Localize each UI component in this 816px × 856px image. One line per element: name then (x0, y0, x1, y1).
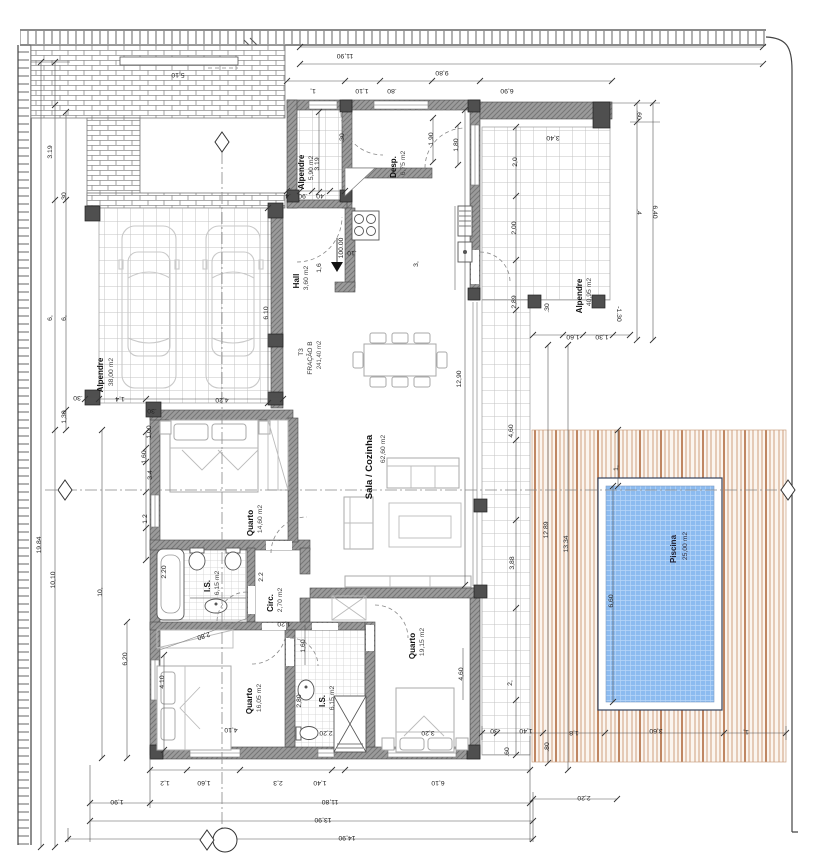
dim-label: 3,60 (649, 727, 662, 734)
room-area-bedroom2: 16,05 m2 (256, 684, 263, 713)
dim-label: 1,8 (569, 729, 579, 736)
shower (334, 696, 366, 752)
room-area-pool: 25,00 m2 (682, 532, 689, 561)
dim-label: 3,40 (546, 134, 559, 141)
dim-label: 1,90 (110, 798, 123, 805)
stove (352, 211, 379, 240)
dim-label: 4,20 (215, 396, 228, 403)
dim-label: .30 (73, 394, 83, 401)
dim-label: 2,3 (273, 779, 283, 786)
brick-block-top-left (31, 45, 285, 118)
dim-label: 6.10 (263, 306, 270, 319)
room-label-hall: Hall (292, 274, 301, 289)
dim-label: .60 (635, 110, 642, 120)
bed-bedroom1 (160, 420, 270, 492)
dim-label: 11,90 (337, 52, 354, 59)
bed-bedroom2 (157, 666, 231, 750)
dim-label: 6,20 (122, 652, 129, 665)
dim-label: 6,10 (431, 779, 444, 786)
dim-label: -1.30 (615, 306, 622, 322)
room-area-living: 62,60 m2 (380, 435, 387, 464)
dim-label: 2,0 (512, 157, 519, 167)
dim-label: 2,20 (577, 794, 590, 801)
dim-label: .30 (490, 727, 500, 734)
dim-label: .30 (147, 407, 157, 414)
dim-label: .30 (339, 133, 346, 143)
dim-label: 1,10 (355, 87, 368, 94)
bidet (189, 548, 205, 570)
dim-label: 1,30 (61, 410, 68, 423)
dim-label: 1,90 (428, 132, 435, 145)
axis-marker-left (58, 480, 72, 500)
dim-label: 2,80 (296, 694, 303, 707)
dim-label: 2,89 (511, 295, 518, 308)
dim-label: 3,88 (509, 556, 516, 569)
dim-label: 1,00 (146, 425, 153, 438)
dim-label: .80 (544, 742, 551, 752)
dim-label: 4,60 (458, 667, 465, 680)
dim-label: 1,60 (566, 333, 579, 340)
dim-label: 10, (97, 587, 104, 597)
room-label-bedroom2: Quarto (245, 688, 254, 714)
dim-label: 5,10 (171, 71, 184, 78)
dim-label: .60 (504, 747, 511, 757)
axis-marker-top (215, 132, 229, 152)
room-area-bath1: 6,15 m2 (214, 571, 221, 596)
dim-label: .90 (298, 192, 308, 199)
dim-label: 10,10 (50, 571, 57, 588)
dim-label: 11,80 (322, 798, 339, 805)
dim-label: 2,20 (319, 729, 332, 736)
dim-label: 3,20 (421, 729, 434, 736)
room-area-terrace: 40,95 m2 (586, 278, 593, 307)
dim-label: 6,90 (500, 87, 513, 94)
dim-label: 3.19 (47, 145, 54, 158)
dim-label: 1,60 (300, 639, 307, 652)
pool-area (532, 430, 786, 762)
dim-label: .40 (316, 192, 326, 199)
boundary-wall-left (18, 45, 31, 845)
dim-label: 1,30 (595, 333, 608, 340)
dim-label: 9,80 (435, 69, 448, 76)
glass-sliding-doors (473, 302, 477, 586)
unit-type-label: T3 (298, 348, 305, 356)
dim-label: 1,80 (453, 138, 460, 151)
room-area-carport: 38,00 m2 (108, 358, 115, 387)
corner-cabinet (345, 168, 375, 196)
room-label-bath2: I.S. (318, 695, 327, 707)
dim-label: .4 (285, 192, 291, 199)
dim-label: 6, (61, 315, 68, 321)
room-area-circ: 2,70 m2 (277, 588, 284, 613)
dim-label: 2.20 (161, 565, 168, 578)
dim-label: 1,2 (160, 779, 170, 786)
unit-area-label: 241,40 m2 (317, 340, 323, 369)
dim-label: .4 (635, 209, 642, 215)
walkway-floor (482, 300, 530, 755)
room-label-circ: Circ. (266, 594, 275, 612)
terrace-floor (482, 127, 610, 300)
dim-label: 3.19 (314, 157, 321, 170)
dim-label: 2,80 (196, 630, 211, 641)
dim-label: 4.10 (159, 675, 166, 688)
lintel-beam (120, 57, 238, 65)
toilet-bath1 (225, 548, 241, 570)
axis-marker-bottom (200, 830, 214, 850)
room-area-bedroom3: 19,15 m2 (419, 628, 426, 657)
dim-label: 2,00 (511, 221, 518, 234)
dim-label: .30 (61, 192, 68, 202)
dim-label: 2.2 (258, 572, 265, 582)
room-label-bath1: I.S. (203, 580, 212, 592)
dim-label: 1, (743, 728, 749, 735)
room-label-pantry: Desp. (389, 156, 398, 178)
unit-fraction-label: FRAÇÃO B (305, 341, 314, 374)
dim-label: 2, (507, 680, 514, 686)
dining-set (353, 333, 447, 387)
dim-label: 4,10 (224, 726, 237, 733)
dim-label: 13.34 (563, 535, 570, 552)
dim-label: 12.89 (543, 521, 550, 538)
dim-label: 3, (413, 261, 420, 267)
pool-water (606, 486, 714, 702)
dim-label: 1,60 (141, 450, 148, 463)
dim-label: 6,40 (651, 205, 658, 218)
bed-bedroom3 (382, 688, 468, 752)
toilet-bath2 (296, 727, 318, 741)
room-area-pantry: 6,75 m2 (400, 151, 407, 176)
room-label-pool: Piscina (669, 534, 678, 563)
dim-label: 13,90 (314, 816, 331, 823)
neighbour-building (31, 45, 285, 208)
dim-label: 19.84 (36, 536, 43, 553)
room-label-carport: Alpendre (96, 357, 105, 392)
boundary-wall-top (20, 30, 766, 45)
dim-label: .10 (347, 249, 357, 256)
dim-label: .30 (544, 303, 551, 313)
detail-marker-circle (213, 828, 237, 852)
dim-label: 1,40 (313, 779, 326, 786)
room-label-living: Sala / Cozinha (364, 434, 375, 499)
dim-label: 3.4 (147, 470, 154, 480)
dim-label: 14,90 (338, 834, 355, 841)
dim-label: 6,60 (608, 594, 615, 607)
dim-label: 12,90 (456, 370, 463, 387)
floor-plan-canvas: Alpendre38,00 m2Alpendre5,90 m2Desp.6,75… (0, 0, 816, 856)
room-label-porch: Alpendre (297, 154, 306, 189)
dim-label: 1,40 (519, 727, 532, 734)
dim-label: .80 (387, 87, 397, 94)
dim-label: 1, (310, 87, 316, 94)
dim-label: 1.2 (142, 514, 149, 524)
dim-label: 1,60 (197, 779, 210, 786)
floor-plan-drawing: Alpendre38,00 m2Alpendre5,90 m2Desp.6,75… (0, 0, 816, 856)
dim-label: 1,4 (115, 395, 125, 402)
dim-label: 4,60 (508, 424, 515, 437)
dim-label: 1, (613, 465, 620, 471)
carport-floor (99, 208, 273, 403)
room-area-hall: 3,60 m2 (303, 266, 310, 291)
level-marker-label: 100.00 (338, 237, 345, 258)
room-label-bedroom1: Quarto (246, 510, 255, 536)
room-label-terrace: Alpendre (575, 278, 584, 313)
bathtub (157, 549, 184, 620)
dim-label: 1,20 (277, 620, 290, 627)
brick-band-carport (87, 193, 285, 208)
room-label-bedroom3: Quarto (408, 633, 417, 659)
dim-label: 1,6 (316, 263, 323, 273)
dim-label: 6, (47, 315, 54, 321)
room-area-bedroom1: 14,60 m2 (257, 505, 264, 534)
room-area-bath2: 6,15 m2 (329, 686, 336, 711)
